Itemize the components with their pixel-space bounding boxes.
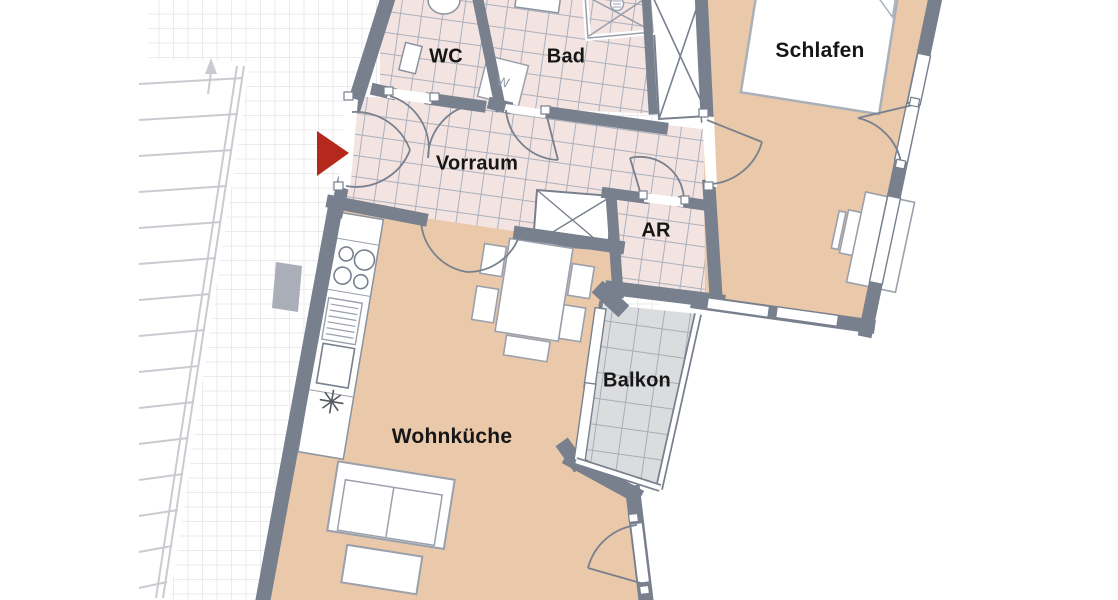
shower-drain-icon (611, 0, 624, 11)
exterior-pillar (272, 262, 302, 312)
room-label-wohnkueche: Wohnküche (392, 425, 512, 449)
room-label-schlafen: Schlafen (775, 39, 864, 63)
dining-table (495, 238, 573, 341)
room-floor-ar (611, 196, 717, 296)
room-label-ar: AR (641, 220, 670, 243)
dining-chair (472, 286, 499, 323)
room-label-vorraum: Vorraum (436, 153, 518, 176)
floor-plan-svg (0, 0, 1118, 600)
room-label-bad: Bad (547, 46, 585, 69)
kitchen-sink (317, 343, 355, 388)
dining-chair (568, 264, 595, 299)
floor-plan: WC Bad Schlafen Vorraum AR Balkon Wohnkü… (0, 0, 1118, 600)
room-label-balkon: Balkon (603, 370, 671, 393)
room-label-wc: WC (429, 46, 463, 69)
